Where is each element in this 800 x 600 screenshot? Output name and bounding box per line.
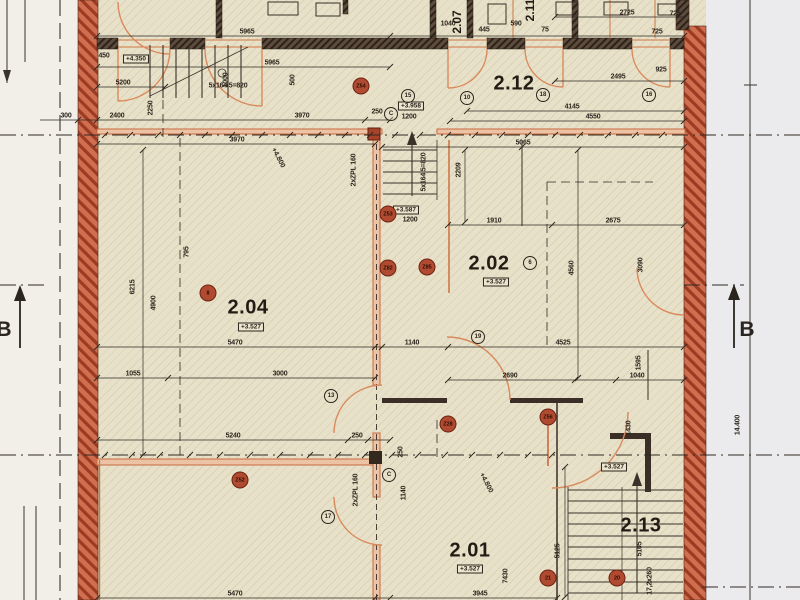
dimension-text: 2495 [611,74,626,81]
dimension-text: 725 [651,29,662,36]
position-marker-circled: C [382,468,396,482]
dimension-text: 590 [510,21,521,28]
position-marker-red: Z52 [232,472,249,489]
dimension-text: 4560 [569,261,576,276]
dimension-text: 75 [541,27,548,34]
floor-level-tag: +3.527 [457,565,483,574]
dimension-text: 5240 [226,433,241,440]
position-marker-red: 21 [540,570,557,587]
level-annotation: +4.800 [270,147,286,169]
dimension-text: 17,2x260 [647,567,654,595]
dimension-text: 3000 [273,371,288,378]
dimension-text: 2725 [620,10,635,17]
floor-level-tag: +3.587 [393,206,419,215]
dimension-text: 1430 [626,421,633,436]
position-marker-red: Z82 [380,260,397,277]
room-number-label: 2.13 [621,515,662,538]
position-marker-red: Z85 [419,259,436,276]
floor-level-tag: +3.527 [601,463,627,472]
dimension-text: 5965 [240,29,255,36]
room-number-label: 2.04 [228,297,269,320]
position-marker-circled: C [384,107,398,121]
dimension-text: 1200 [403,217,418,224]
dimension-text: 4900 [151,296,158,311]
dimension-text: 1200 [402,114,417,121]
dimension-text: 4550 [586,114,601,121]
room-number-label: 2.07 [450,10,464,33]
level-annotation: +4.800 [478,472,494,494]
dimension-text: 5470 [228,591,243,598]
dimension-text: 5x164,5=820 [421,153,428,192]
dimension-text: 250 [371,109,382,116]
dimension-text: 1910 [487,218,502,225]
position-marker-circled: 19 [471,330,485,344]
position-marker-circled: 17 [321,510,335,524]
position-marker-circled: 16 [642,88,656,102]
dimension-text: 5965 [265,60,280,67]
section-mark-left: B [0,318,12,342]
dimension-text: 725 [669,11,680,18]
position-marker-circled: 15 [401,89,415,103]
dimension-text: 1595 [636,356,643,371]
floor-level-tag: +3.958 [398,102,424,111]
dimension-text: 445 [478,27,489,34]
floor-level-tag: +3.527 [483,278,509,287]
dimension-text: 250 [398,446,405,457]
dimension-text: 2xZPL 160 [353,474,360,507]
position-marker-red: 8 [200,285,217,302]
dimension-text: 1040 [630,373,645,380]
dimension-text: 450 [98,53,109,60]
room-number-label: 2.11 [523,0,537,21]
dimension-text: 3970 [230,137,245,144]
floor-plan-scan: 5965725596552005x164,5=82045027257252495… [0,0,800,600]
position-marker-red: 20 [609,570,626,587]
dimension-text: 5125 [555,544,562,559]
dimension-text: 1140 [405,340,419,347]
dimension-text: 5200 [116,80,131,87]
dimension-text: 925 [655,67,666,74]
dimension-text: 4145 [565,104,580,111]
floor-level-tag: +4.350 [123,55,149,64]
dimension-text: 2xZPL 160 [351,154,358,187]
dimension-text: 1000 [223,73,230,88]
section-mark-right: B [739,318,754,342]
dimension-text: 1140 [401,486,408,500]
position-marker-red: Z53 [380,206,397,223]
dimension-text: 7430 [503,569,510,584]
room-number-label: 2.01 [450,540,491,563]
dimension-text: 3970 [295,113,310,120]
dimension-text: 250 [351,433,362,440]
dimension-text: 795 [184,246,191,257]
position-marker-circled: 13 [324,389,338,403]
dimension-text: 500 [290,74,297,85]
dimension-text: 5105 [637,542,644,557]
annotation-layer: 5965725596552005x164,5=82045027257252495… [0,0,800,600]
dimension-text: 3090 [638,258,645,273]
room-number-label: 2.12 [494,73,535,96]
dimension-text: 2400 [110,113,125,120]
position-marker-red: Z54 [353,78,370,95]
position-marker-red: Z28 [440,416,457,433]
room-number-label: 2.02 [469,253,510,276]
dimension-text: 2690 [503,373,518,380]
dimension-text: 300 [60,113,71,120]
position-marker-circled: 6 [523,256,537,270]
position-marker-red: Z56 [540,409,557,426]
dimension-text: 3945 [473,591,488,598]
position-marker-circled: 18 [536,88,550,102]
dimension-text: 6215 [130,280,137,295]
dimension-text: 14.400 [735,415,742,435]
floor-level-tag: +3.527 [238,323,264,332]
dimension-text: 2675 [606,218,621,225]
dimension-text: 5065 [516,140,531,147]
dimension-text: 2209 [456,163,463,178]
position-marker-circled: 10 [460,91,474,105]
dimension-text: 5470 [228,340,243,347]
dimension-text: 2250 [148,101,155,116]
dimension-text: 4525 [556,340,571,347]
dimension-text: 1055 [126,371,141,378]
